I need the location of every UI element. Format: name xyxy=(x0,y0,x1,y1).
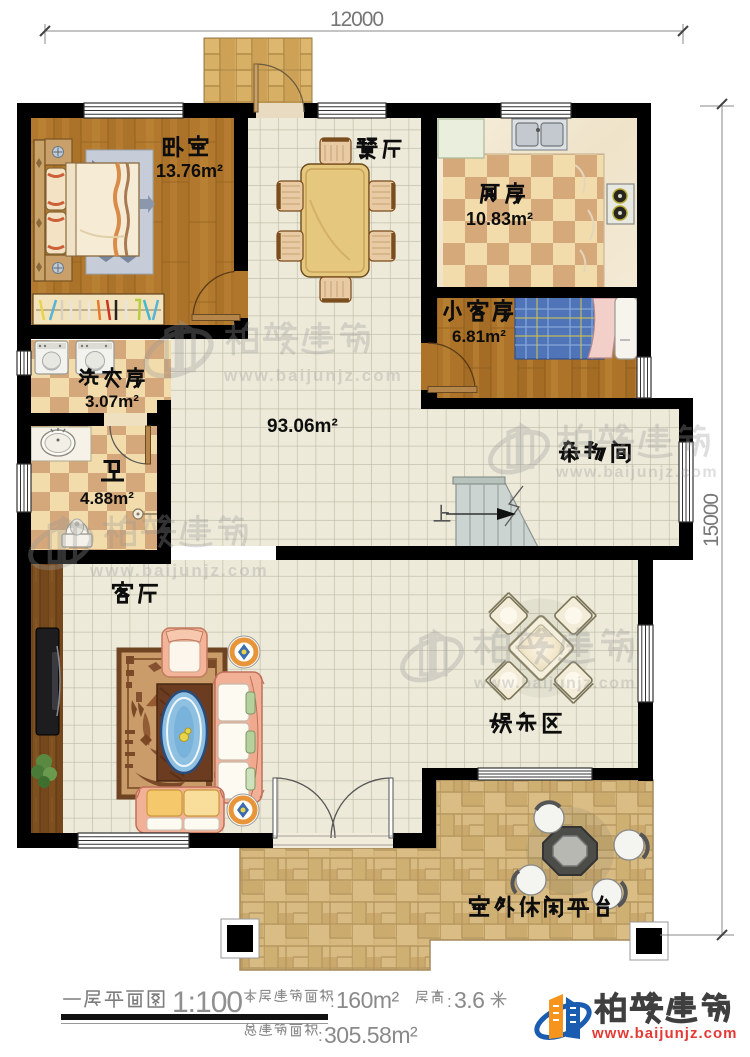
svg-text:15000: 15000 xyxy=(700,493,723,547)
svg-text:93.06m²: 93.06m² xyxy=(267,416,338,437)
svg-text:3.07m²: 3.07m² xyxy=(85,392,139,411)
svg-text:6.81m²: 6.81m² xyxy=(452,327,506,346)
svg-text:www.baijunjz.com: www.baijunjz.com xyxy=(89,561,269,580)
svg-text:www.baijunjz.com: www.baijunjz.com xyxy=(223,366,403,385)
svg-text:www.baijunjz.com: www.baijunjz.com xyxy=(591,1025,737,1042)
svg-text:10.83m²: 10.83m² xyxy=(466,209,533,229)
svg-text:4.88m²: 4.88m² xyxy=(80,489,134,508)
svg-text:13.76m²: 13.76m² xyxy=(156,161,223,181)
svg-text:12000: 12000 xyxy=(330,8,384,31)
svg-text::: : xyxy=(447,992,452,1011)
svg-text:www.baijunjz.com: www.baijunjz.com xyxy=(555,464,718,481)
svg-text:3.6: 3.6 xyxy=(454,987,484,1013)
svg-text:305.58m²: 305.58m² xyxy=(324,1022,418,1048)
svg-text:160m²: 160m² xyxy=(336,987,400,1013)
svg-text::: : xyxy=(318,1026,323,1045)
svg-text:www.baijunjz.com: www.baijunjz.com xyxy=(473,675,636,692)
svg-text::: : xyxy=(330,992,335,1011)
